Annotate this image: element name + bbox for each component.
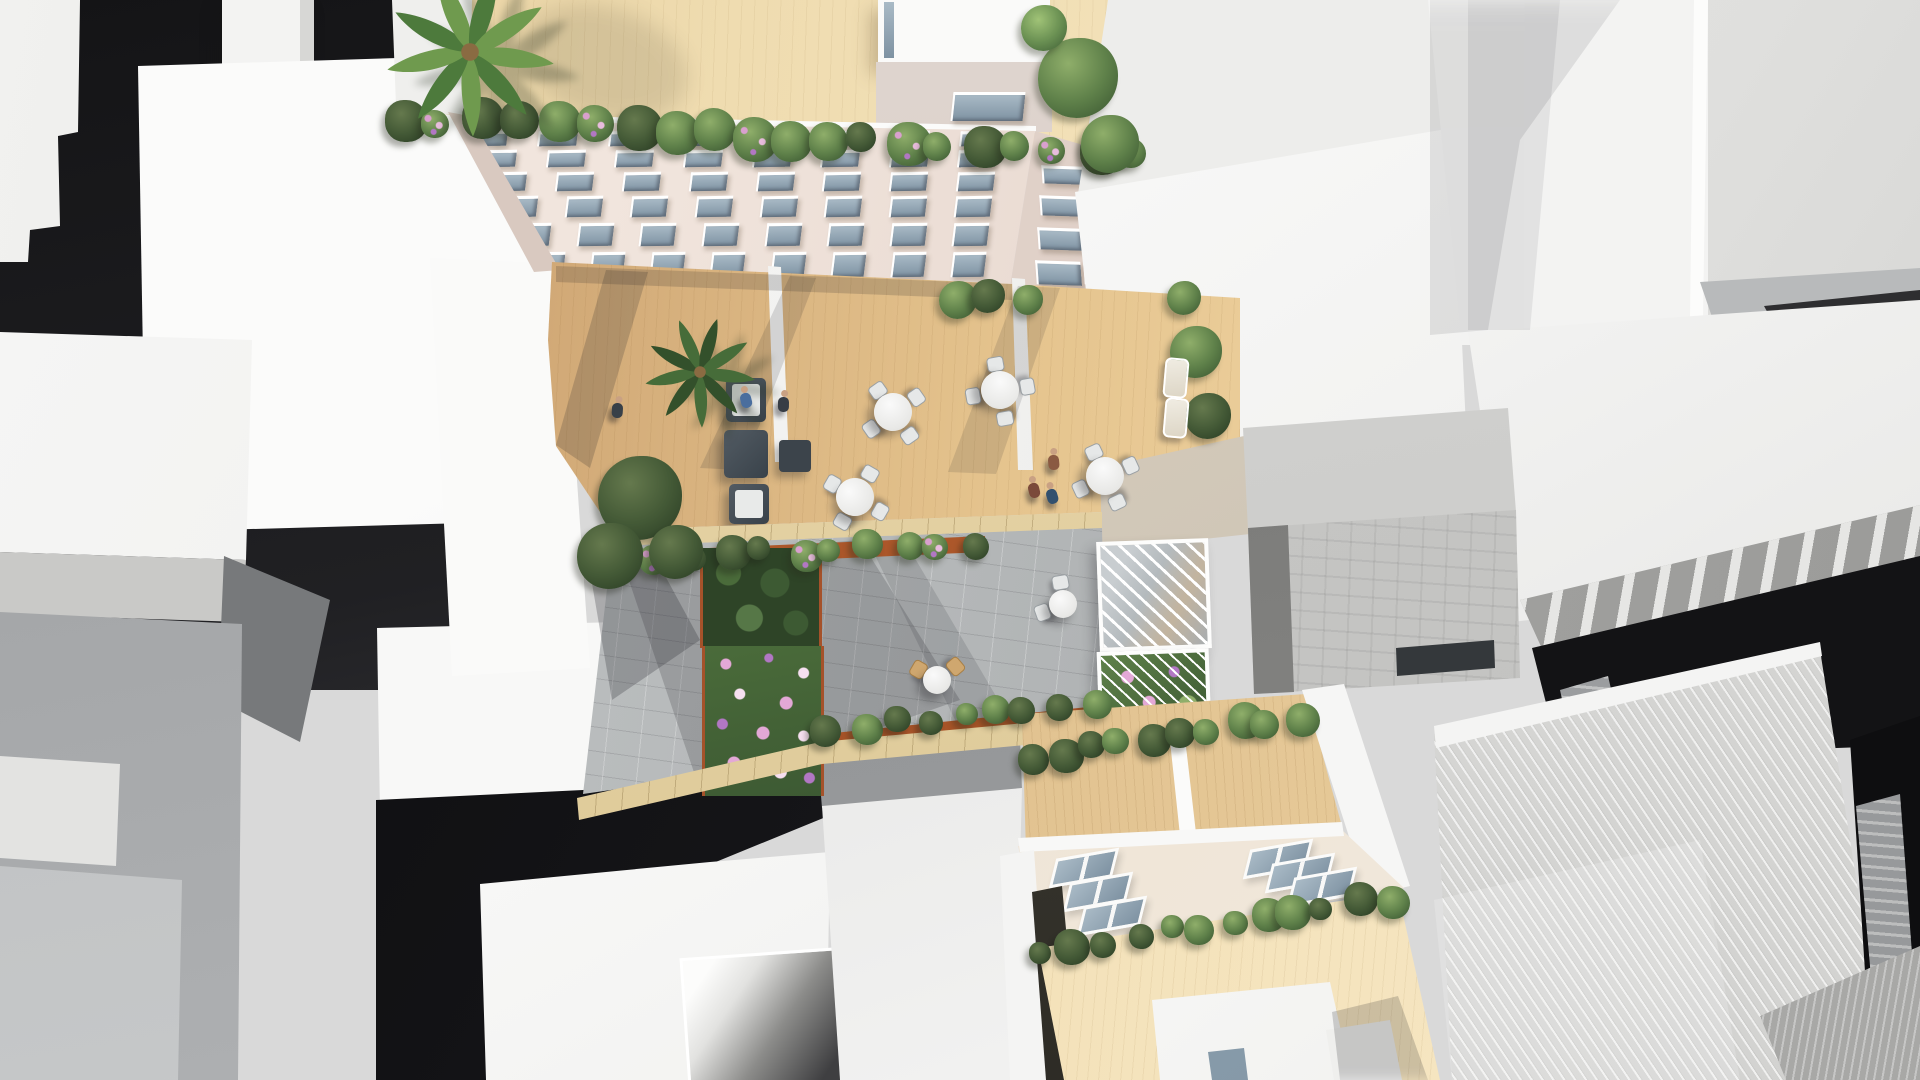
hedge-bush [1008,697,1034,723]
hedge-bush [919,711,944,736]
facade-window [764,223,801,247]
hedge-bush [771,121,812,162]
person-body [1048,455,1060,471]
hedge-bush [1344,882,1378,916]
facade-window [889,196,927,218]
person [1047,448,1060,473]
facade-window [622,172,661,192]
hedge-bush [1102,728,1128,754]
hedge-bush [1377,886,1410,919]
hedge-bush [923,132,951,160]
hedge-bush [817,539,840,562]
facade-window [565,196,603,218]
hedge-bush [1046,694,1073,721]
hedge-bush [1193,719,1219,745]
sun-lounger [1162,397,1189,439]
aerial-render-scene [0,0,1920,1080]
hedge-bush [1129,924,1154,949]
dining-chair [995,409,1014,427]
coffee-table [779,440,811,472]
palm-tree [642,314,758,430]
sun-lounger [1162,357,1189,399]
hedge-bush [852,714,883,745]
facade-window [614,150,654,168]
bistro-table-set [913,656,961,704]
hedge-bush [1029,942,1051,964]
facade-window [950,252,986,278]
palm-tree [382,0,558,140]
facade-window [629,196,667,218]
bistro-chair [1050,573,1069,591]
hedge-bush [1090,932,1116,958]
hedge-bush [956,703,978,725]
hedge-bush [1223,911,1248,936]
facade-window [639,223,676,247]
hedge-bush [846,122,876,152]
pergola-canopy [1096,538,1212,652]
person [778,390,789,414]
dining-table [974,364,1027,417]
hedge-bush [982,695,1011,724]
hedge-bush [1083,690,1112,719]
hedge-bush [963,533,989,559]
person-head [781,390,788,397]
wing-window [1041,165,1084,184]
person-head [615,396,622,403]
hedge-bush [922,534,949,561]
facade-window [555,172,594,192]
hedge-bush [716,535,751,570]
facade-window [759,196,797,218]
hedge-bush [1184,915,1214,945]
hedge-bush [1054,929,1090,965]
hedge-bush [897,532,925,560]
facade-window [694,196,732,218]
hedge-bush [1286,703,1320,737]
person-head [1049,448,1057,456]
hedge-bush [852,529,882,559]
hedge-bush [810,715,841,746]
hedge-bush [1250,710,1279,739]
facade-window [701,223,738,247]
bistro-table [1049,590,1077,618]
hedge-bush [809,122,848,161]
penthouse-skylight-sliver [884,2,894,58]
facade-window [889,172,928,192]
bistro-table-set [1039,580,1087,628]
armchair-cushion [735,490,763,518]
facade-window [889,223,926,247]
facade-window [952,223,989,247]
facade-window [824,196,862,218]
facade-window [830,252,866,278]
hedge-bush [1018,744,1049,775]
facade-window [688,172,727,192]
hedge-bush [1078,731,1105,758]
hedge-bush [694,108,736,150]
facade-window [822,172,861,192]
hedge-bush [1000,131,1029,160]
facade-window [755,172,794,192]
hedge-bush [1275,895,1311,931]
hedge-bush [884,706,911,733]
facade-window [576,223,613,247]
person-body [778,397,789,412]
facade-window [890,252,926,278]
facade-window [956,172,995,192]
hedge-bush [1309,898,1331,920]
person-body [611,403,623,419]
dining-chair [1018,377,1036,396]
facade-window [954,196,992,218]
bistro-table [923,666,951,694]
armchair [729,484,769,524]
hedge-bush [1165,718,1195,748]
hedge-bush [1161,915,1185,939]
person [611,396,623,421]
penthouse-window [950,92,1025,121]
facade-window [827,223,864,247]
hedge-bush [747,536,771,560]
dining-table-set [858,377,928,447]
wing-window [1037,227,1083,251]
wing-window [1035,260,1082,286]
